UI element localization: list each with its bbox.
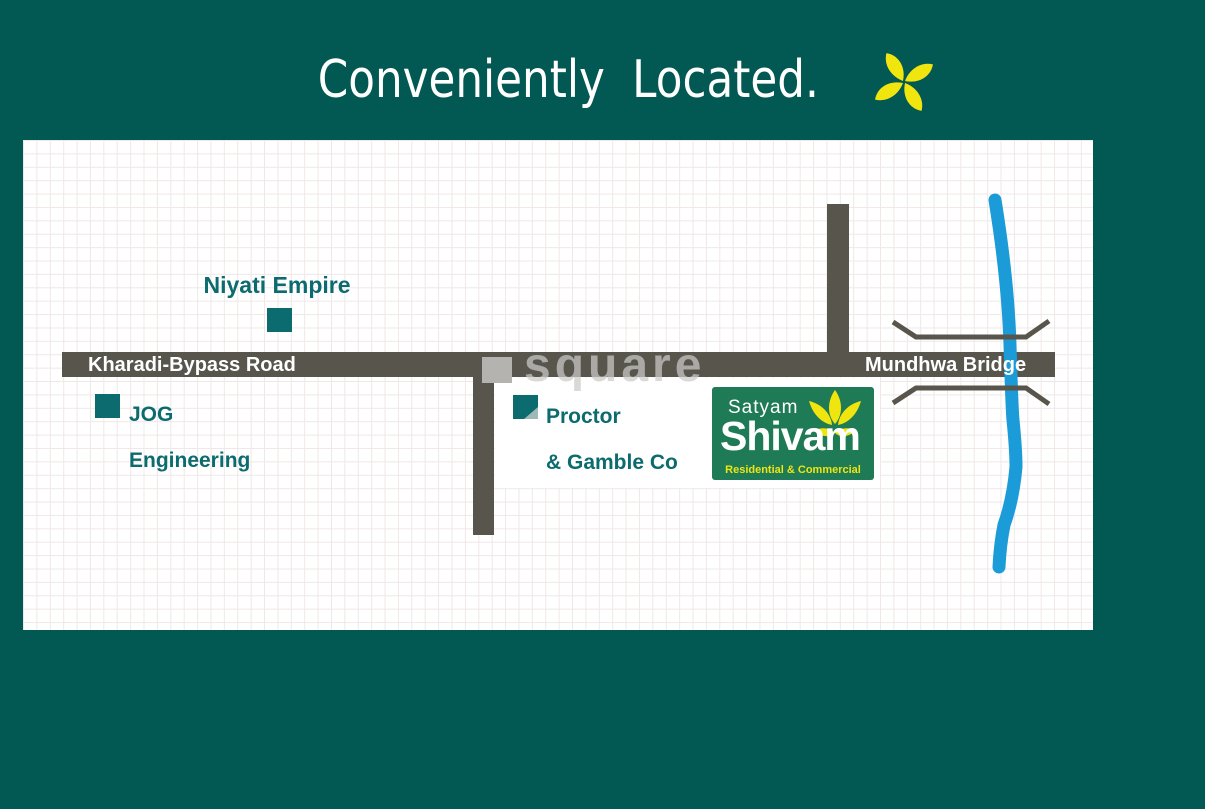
logo-line-shivam: Shivam (720, 413, 860, 460)
road-label-mundhwa-bridge: Mundhwa Bridge (865, 354, 1026, 376)
jog-line2: Engineering (129, 449, 250, 472)
landmark-label-proctor-gamble: Proctor & Gamble Co (546, 382, 678, 497)
page-header: Conveniently Located. (0, 40, 1205, 120)
bridge-rail-lower (893, 388, 1049, 404)
landmark-marker-jog-engineering (95, 394, 120, 418)
landmark-label-jog-engineering: JOG Engineering (129, 380, 250, 495)
proctor-line1: Proctor (546, 405, 678, 428)
landmark-label-niyati-empire: Niyati Empire (167, 274, 387, 297)
jog-line1: JOG (129, 403, 250, 426)
road-vertical-right (827, 204, 849, 352)
road-vertical-middle (473, 377, 494, 535)
road-label-kharadi-bypass: Kharadi-Bypass Road (88, 354, 296, 376)
proctor-line2: & Gamble Co (546, 451, 678, 474)
landmark-marker-niyati-empire (267, 308, 292, 332)
satyam-shivam-logo: Satyam Shivam Residential & Commercial (712, 387, 874, 480)
location-map: Kharadi-Bypass Road Mundhwa Bridge Niyat… (23, 140, 1093, 630)
river (995, 200, 1016, 567)
landmark-marker-proctor-gamble (513, 395, 538, 419)
brand-flower-icon (873, 51, 935, 113)
page-title: Conveniently Located. (318, 50, 819, 110)
watermark-square-icon (482, 357, 512, 383)
watermark-text: square (524, 338, 705, 393)
bridge-rail-upper (893, 321, 1049, 337)
logo-tagline: Residential & Commercial (712, 464, 874, 476)
